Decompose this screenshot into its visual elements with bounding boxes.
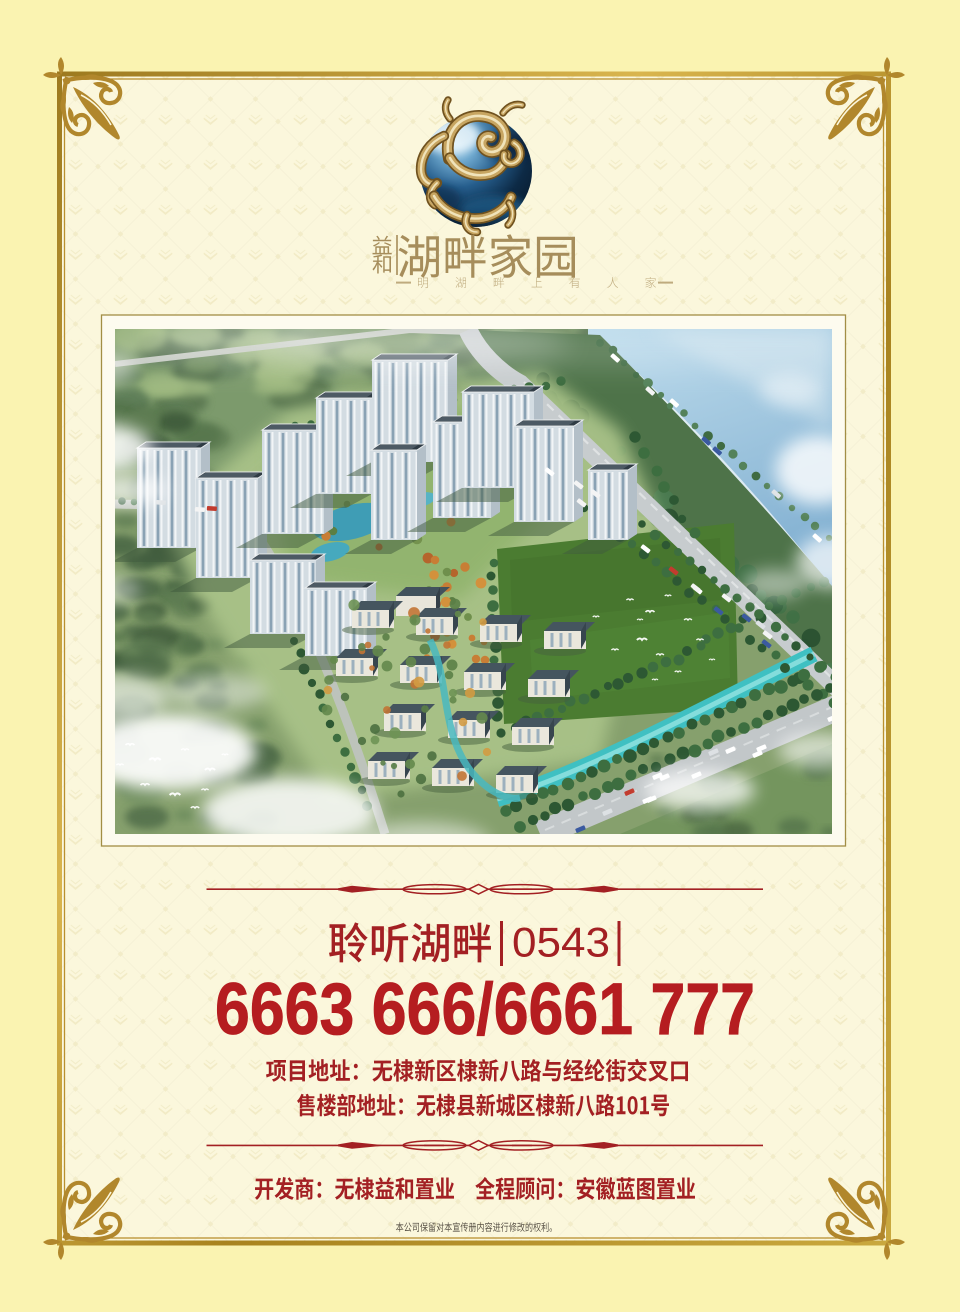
svg-text:0543: 0543 — [512, 919, 610, 966]
svg-text:6663 666/6661 777: 6663 666/6661 777 — [215, 969, 755, 1050]
